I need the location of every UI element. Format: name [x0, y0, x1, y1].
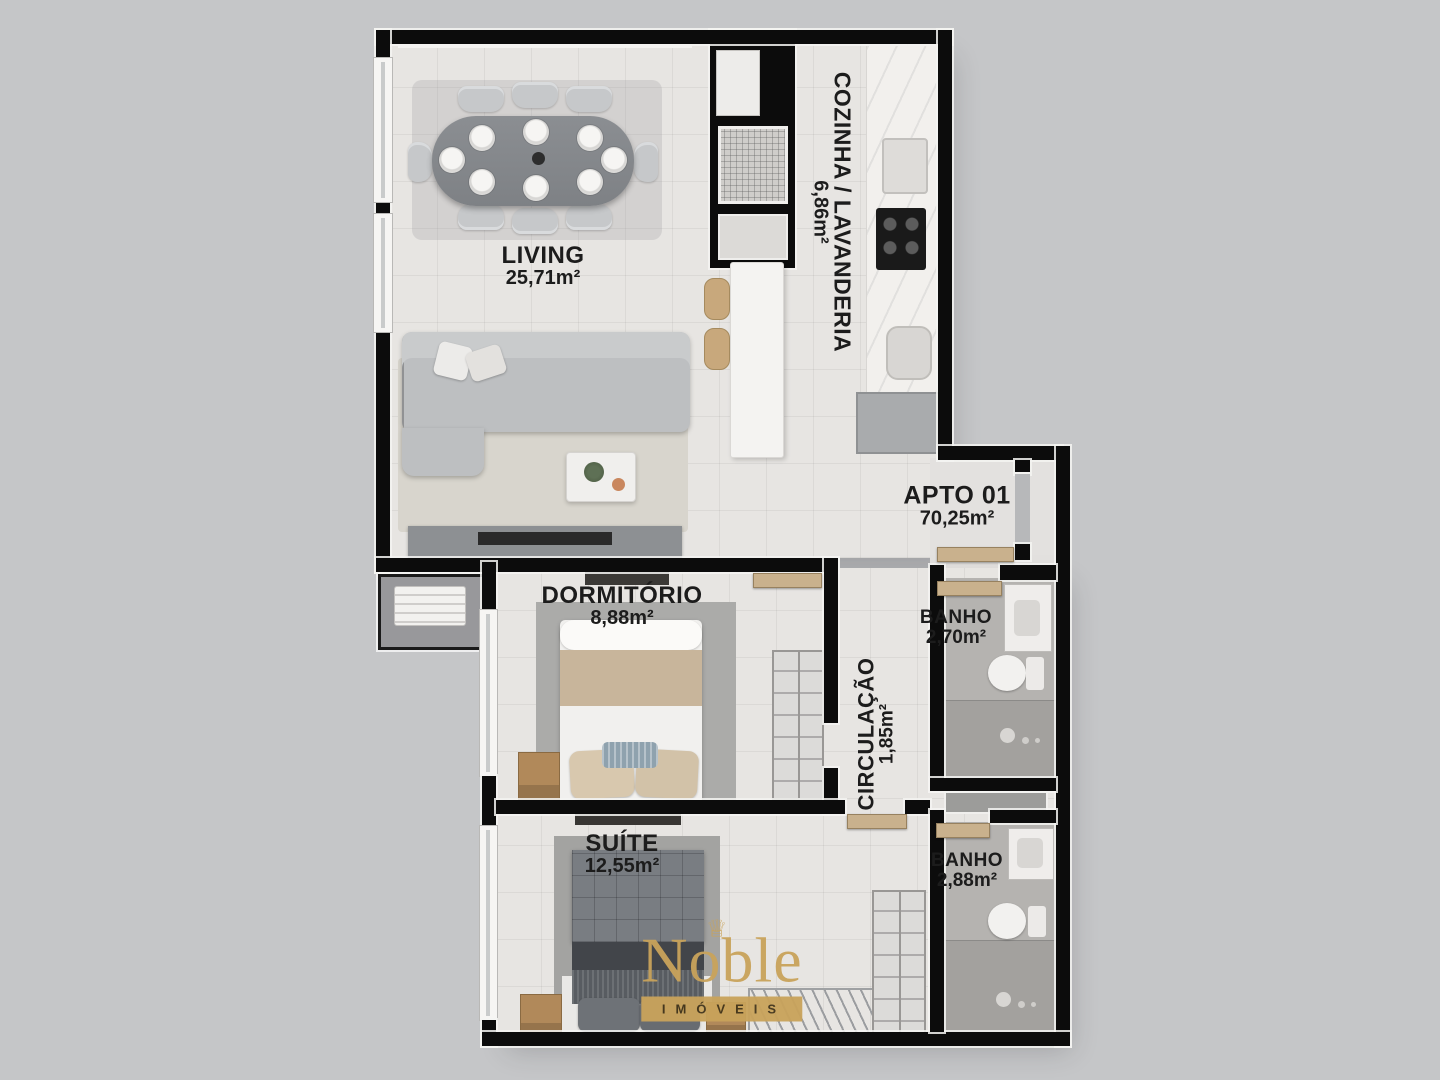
room-name: LIVING: [501, 243, 584, 268]
toilet-bowl: [988, 903, 1026, 939]
room-area: 2,88m²: [931, 871, 1003, 891]
room-name: DORMITÓRIO: [542, 583, 703, 608]
dining-chair: [512, 82, 558, 108]
suite-wardrobe: [872, 890, 926, 1034]
plant: [584, 462, 604, 482]
shower-fixture: [996, 992, 1011, 1007]
kitchen-sink: [882, 138, 928, 194]
round-sink: [886, 326, 932, 380]
room-area: 2,70m²: [920, 628, 992, 648]
table-centerpiece: [532, 152, 545, 165]
wall-bottom: [482, 1032, 1070, 1046]
wall-left-lower: [482, 562, 496, 610]
wall-circ-right: [930, 810, 944, 1032]
brand-tagline-band: IMÓVEIS: [641, 997, 802, 1022]
wall-dorm-right: [824, 558, 838, 723]
label-circulacao: CIRCULAÇÃO 1,85m²: [854, 658, 897, 811]
dining-chair: [458, 86, 504, 112]
plate: [577, 169, 603, 195]
wall-entry-top: [938, 446, 1062, 460]
room-area: 6,86m²: [809, 72, 830, 352]
wall-right-kitchen: [938, 30, 952, 460]
label-apto: APTO 01 70,25m²: [903, 482, 1010, 529]
wall-banho1-top: [1000, 565, 1056, 580]
door-entry: [937, 547, 1014, 562]
room-name: BANHO: [931, 851, 1003, 871]
brand-tagline: IMÓVEIS: [662, 1002, 786, 1017]
stove: [876, 208, 926, 270]
plate: [469, 125, 495, 151]
toilet-bowl: [988, 655, 1026, 691]
wall-dorm-suite: [905, 800, 930, 814]
room-name: APTO 01: [903, 482, 1010, 508]
label-living: LIVING 25,71m²: [501, 243, 584, 289]
brand-logo: Noble ♕ IMÓVEIS: [641, 929, 802, 1022]
room-name: CIRCULAÇÃO: [854, 658, 877, 811]
basin: [1017, 838, 1043, 868]
dorm-blanket: [560, 650, 702, 706]
plate: [523, 175, 549, 201]
window-dormitorio: [480, 610, 497, 776]
room-area: 12,55m²: [585, 856, 660, 877]
room-area: 70,25m²: [903, 509, 1010, 530]
label-suite: SUÍTE 12,55m²: [585, 831, 660, 877]
tv: [478, 532, 612, 545]
label-banho1: BANHO 2,70m²: [920, 608, 992, 648]
floor-plan: LIVING 25,71m² COZINHA / LAVANDERIA 6,86…: [0, 0, 1440, 1080]
sofa-chaise: [402, 428, 484, 476]
ac-unit: [394, 586, 466, 626]
label-cozinha: COZINHA / LAVANDERIA 6,86m²: [809, 72, 854, 352]
floor-banho-1-shower: [942, 700, 1056, 781]
page: { "title": "Planta baixa APTO 01", "room…: [0, 0, 1440, 1080]
window-living: [374, 214, 392, 332]
crown-icon: ♕: [706, 915, 728, 944]
suite-pillow: [578, 998, 640, 1032]
entry-opening: [1015, 474, 1030, 544]
wall-left-lower: [482, 776, 496, 826]
door-dormitorio: [753, 573, 822, 588]
nightstand: [518, 752, 560, 800]
door-banho2: [936, 823, 990, 838]
wall-right-outer: [1056, 446, 1070, 1046]
wall-banho2-top: [990, 810, 1056, 823]
wall-vestibule: [1015, 544, 1030, 560]
door-suite: [847, 814, 907, 829]
dining-chair: [566, 204, 612, 230]
decor-tray: [612, 478, 625, 491]
room-name: BANHO: [920, 608, 992, 628]
room-area: 25,71m²: [501, 268, 584, 289]
window-living: [374, 58, 392, 202]
window-sill-top: [398, 44, 692, 48]
dining-chair: [634, 142, 658, 182]
door-banho1: [937, 581, 1002, 596]
label-banho2: BANHO 2,88m²: [931, 851, 1003, 891]
toilet-tank: [1028, 906, 1046, 937]
dorm-wardrobe: [772, 650, 824, 800]
wall-living-dorm: [376, 558, 838, 572]
dining-chair: [512, 208, 558, 234]
stool: [704, 278, 730, 320]
laundry-washer: [718, 126, 788, 204]
plate: [439, 147, 465, 173]
dining-chair: [408, 142, 432, 182]
room-area: 1,85m²: [878, 658, 898, 811]
basin: [1014, 600, 1040, 636]
wall-top: [376, 30, 952, 44]
room-area: 8,88m²: [542, 608, 703, 629]
dining-chair: [566, 86, 612, 112]
room-name: SUÍTE: [585, 831, 660, 856]
laundry-tub: [716, 50, 760, 116]
floor-banho-2-shower: [942, 940, 1056, 1035]
kitchen-island: [730, 262, 784, 458]
plate: [577, 125, 603, 151]
washing-machine: [856, 392, 940, 454]
room-name: COZINHA / LAVANDERIA: [830, 72, 854, 352]
dining-chair: [458, 204, 504, 230]
plate: [469, 169, 495, 195]
plate: [523, 119, 549, 145]
wall-dorm-suite: [496, 800, 845, 814]
dorm-accent-pillow: [602, 742, 658, 768]
toilet-tank: [1026, 657, 1044, 690]
nightstand: [520, 994, 562, 1036]
wall-banho1-bottom: [930, 778, 1056, 791]
wall-vestibule: [1015, 460, 1030, 474]
plate: [601, 147, 627, 173]
window-suite: [480, 826, 497, 1020]
label-dormitorio: DORMITÓRIO 8,88m²: [542, 583, 703, 629]
stool: [704, 328, 730, 370]
shower-fixture: [1000, 728, 1015, 743]
wall-circ-right: [930, 565, 944, 791]
laundry-cabinet: [718, 214, 788, 260]
